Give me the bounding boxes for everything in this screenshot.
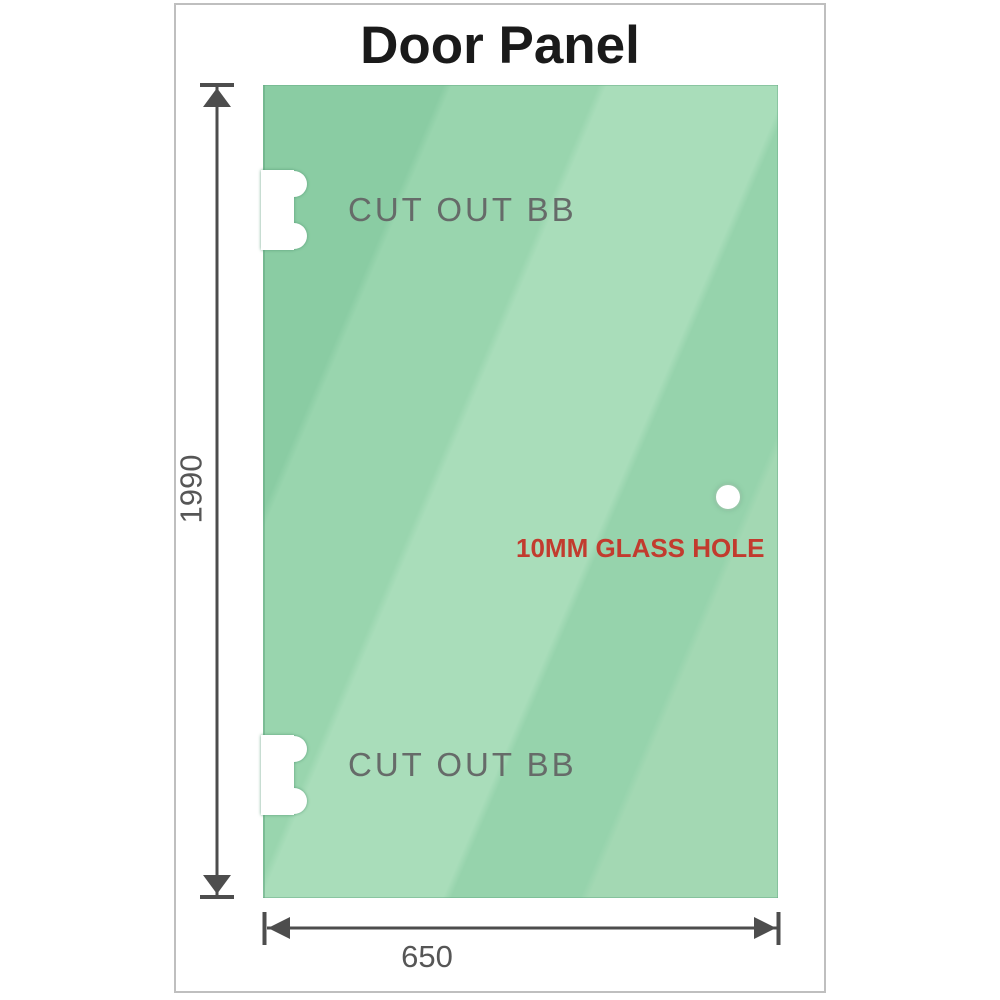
page-title: Door Panel xyxy=(174,17,826,75)
hinge-cutout-bottom xyxy=(261,730,307,820)
cutout-label-bottom: CUT OUT BB xyxy=(348,748,577,781)
diagram-page: Door Panel CUT OUT BB CUT OUT BB 10MM GL… xyxy=(0,0,1000,1000)
hinge-cutout-top xyxy=(261,165,307,255)
glass-hole xyxy=(714,483,742,511)
cutout-label-top: CUT OUT BB xyxy=(348,193,577,226)
width-dimension-value: 650 xyxy=(401,941,453,972)
height-dimension-value: 1990 xyxy=(176,455,207,524)
hinge-cutout-shape xyxy=(261,735,307,815)
glass-hole-label: 10MM GLASS HOLE xyxy=(516,535,764,561)
hinge-cutout-shape xyxy=(261,170,307,250)
